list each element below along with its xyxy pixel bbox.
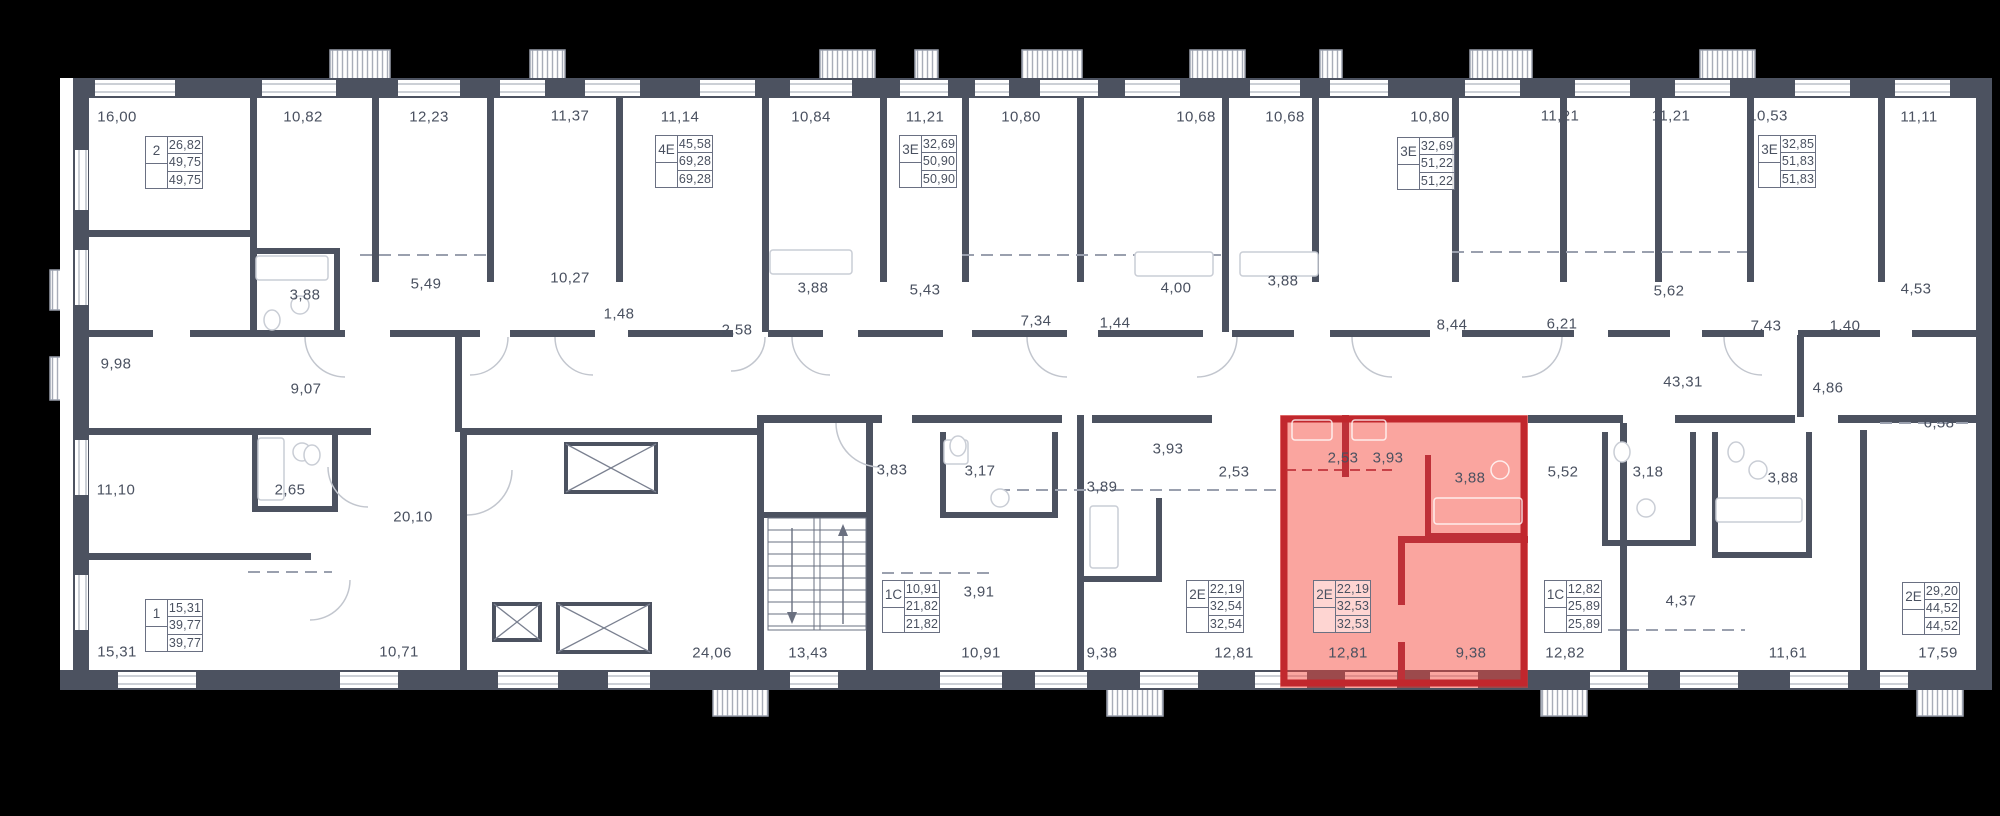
floor-plan-drawing: [0, 0, 2000, 816]
floor-plan-viewport: 16,0010,8212,2311,3711,1410,8411,2110,80…: [0, 0, 2000, 816]
staircase: [768, 518, 866, 630]
plan-paper: [60, 78, 1992, 690]
